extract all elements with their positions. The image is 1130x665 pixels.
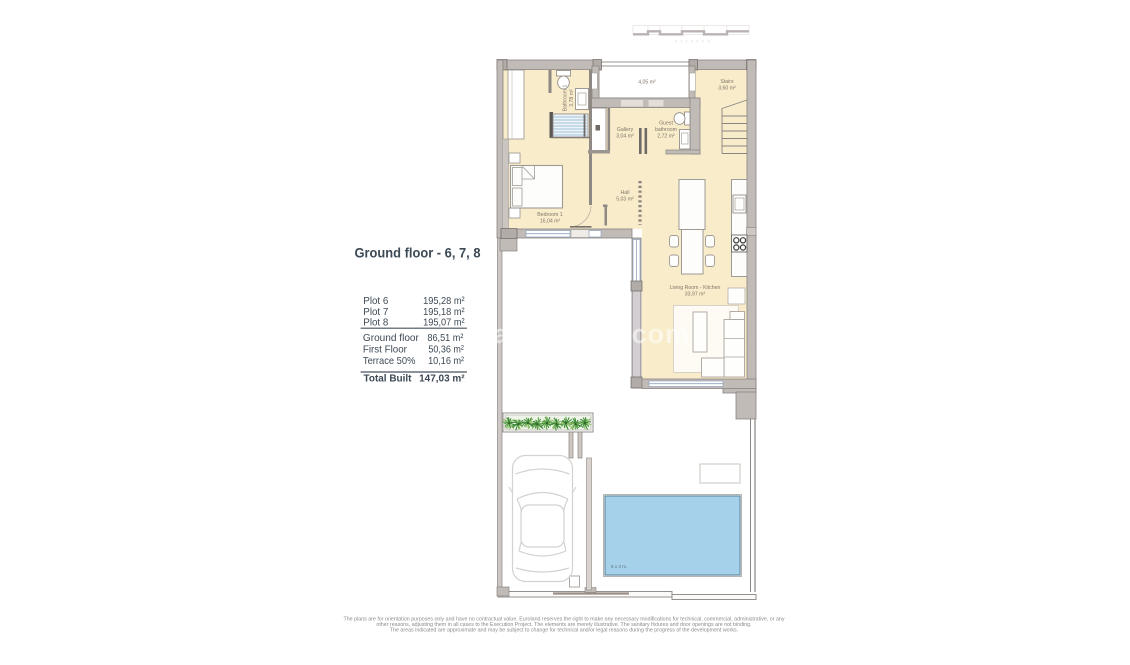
svg-text:195,07 m²: 195,07 m² xyxy=(423,316,465,328)
svg-text:0 1 2 3 4 5 m: 0 1 2 3 4 5 m xyxy=(675,40,712,44)
svg-text:5,03 m²: 5,03 m² xyxy=(616,197,634,203)
svg-text:Plot 8: Plot 8 xyxy=(363,316,388,328)
svg-text:Ground floor: Ground floor xyxy=(363,332,419,344)
svg-text:33,97 m²: 33,97 m² xyxy=(685,292,706,298)
svg-text:bathroom: bathroom xyxy=(655,127,677,133)
svg-text:First Floor: First Floor xyxy=(363,344,407,356)
svg-text:5 x 3 m.: 5 x 3 m. xyxy=(611,564,627,569)
svg-text:The areas indicated are approx: The areas indicated are approximate and … xyxy=(390,628,738,634)
svg-text:Total Built: Total Built xyxy=(364,372,412,384)
svg-text:Guest: Guest xyxy=(659,121,673,127)
svg-text:Bathroom 1: Bathroom 1 xyxy=(563,84,569,111)
svg-text:3,04 m²: 3,04 m² xyxy=(616,134,634,140)
svg-text:Gallery: Gallery xyxy=(617,127,634,133)
svg-text:10,16 m²: 10,16 m² xyxy=(428,355,464,367)
svg-text:Ground floor - 6, 7, 8: Ground floor - 6, 7, 8 xyxy=(355,246,481,261)
svg-text:86,51 m²: 86,51 m² xyxy=(427,332,463,344)
svg-text:casavillas.es.com: casavillas.es.com xyxy=(445,319,690,349)
svg-text:Bedroom 1: Bedroom 1 xyxy=(537,212,562,218)
svg-text:Living Room - Kitchen: Living Room - Kitchen xyxy=(670,285,721,291)
svg-text:50,36 m²: 50,36 m² xyxy=(428,344,464,356)
svg-text:Hall: Hall xyxy=(621,190,630,196)
svg-text:3,78 m²: 3,78 m² xyxy=(569,89,575,107)
svg-text:Terrace 50%: Terrace 50% xyxy=(363,355,416,367)
svg-text:3,60 m²: 3,60 m² xyxy=(718,86,736,92)
svg-text:16,04 m²: 16,04 m² xyxy=(540,219,561,225)
svg-text:147,03 m²: 147,03 m² xyxy=(419,372,465,384)
svg-text:2,72 m²: 2,72 m² xyxy=(657,134,675,140)
svg-text:Stairs: Stairs xyxy=(720,79,734,85)
svg-text:4,05 m²: 4,05 m² xyxy=(638,80,656,86)
